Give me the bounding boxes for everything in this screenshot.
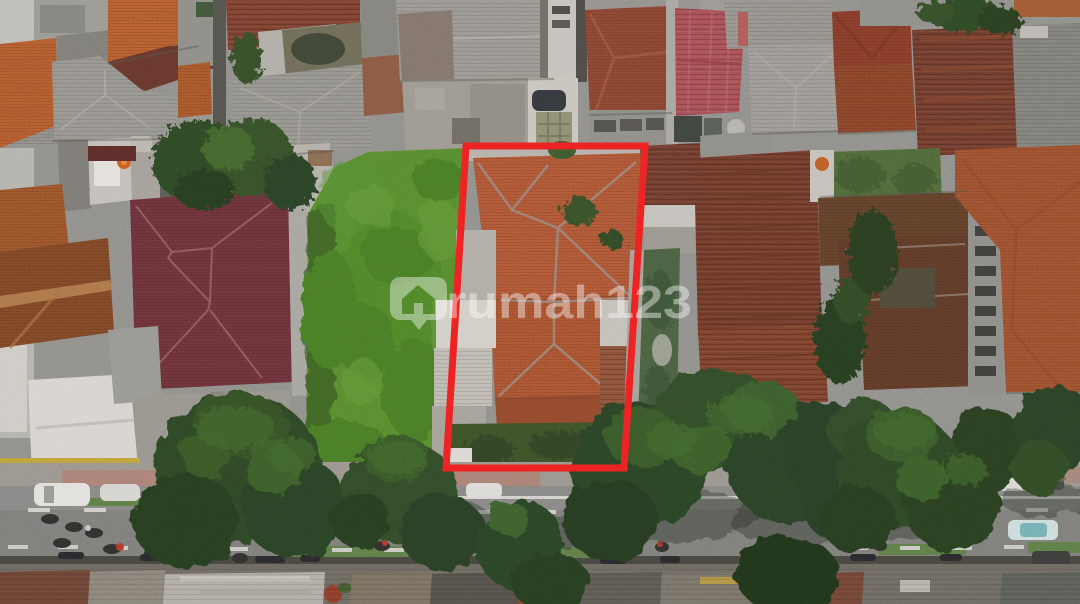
svg-text:rumah123: rumah123	[446, 276, 692, 328]
